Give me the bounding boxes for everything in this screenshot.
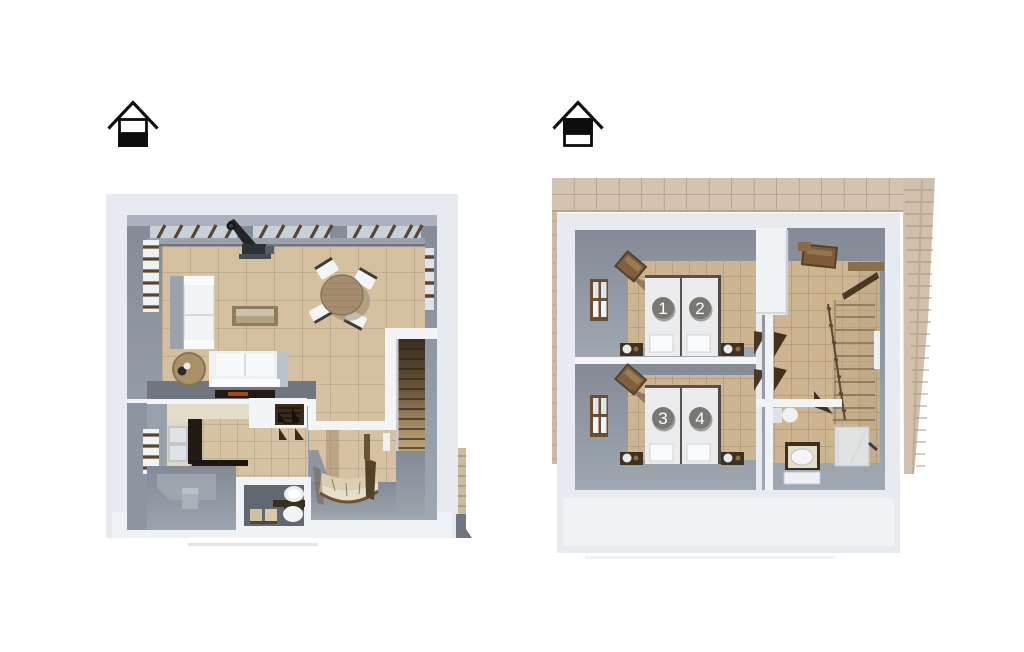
svg-text:4: 4: [695, 409, 704, 428]
svg-text:1: 1: [658, 299, 667, 318]
svg-text:2: 2: [695, 299, 704, 318]
svg-text:3: 3: [658, 409, 667, 428]
